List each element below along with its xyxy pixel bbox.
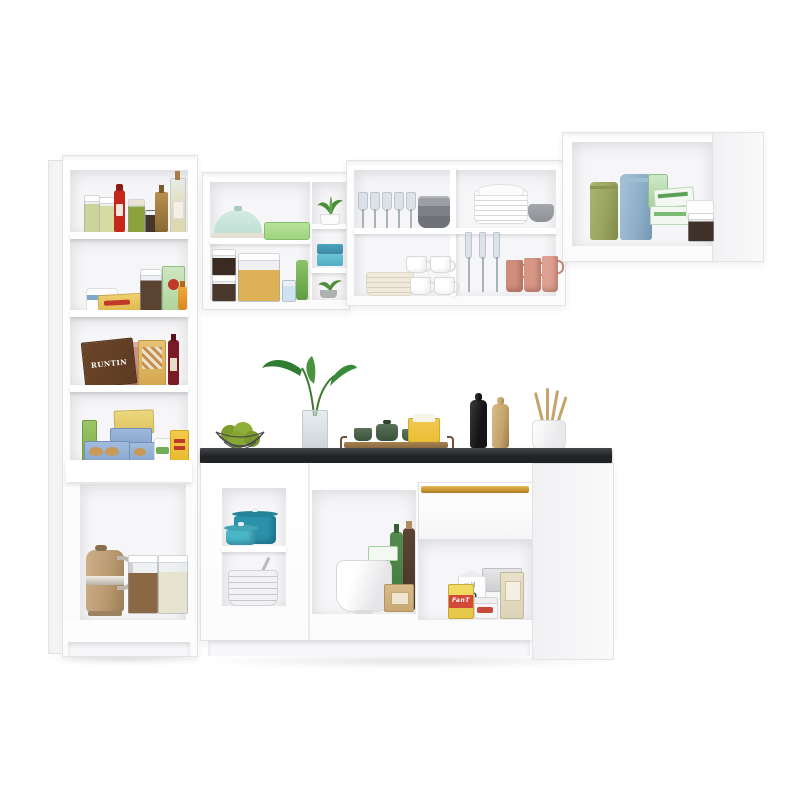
beige-box — [500, 572, 524, 619]
milk-carton-gable — [458, 570, 484, 577]
wine-glass — [406, 192, 416, 228]
wine-glass — [358, 192, 368, 228]
right-cabinet-side-panel — [712, 132, 764, 262]
succulent-plant — [315, 194, 345, 216]
glass-vase — [302, 410, 328, 450]
white-cup — [406, 256, 427, 273]
white-cup — [434, 277, 455, 295]
olive-jar — [128, 202, 145, 234]
base-plinth — [208, 640, 530, 656]
drawer-gold-handle — [421, 486, 529, 493]
cereal-box — [138, 340, 166, 386]
base-corner-shelf — [222, 546, 286, 552]
cereal-canister — [238, 256, 280, 302]
kraft-paper-bag — [384, 584, 414, 612]
apple-basket — [212, 416, 268, 450]
green-teapot — [376, 424, 398, 441]
chocolate-box: RUNTIN — [81, 337, 138, 388]
bowl-stack — [228, 570, 278, 606]
berry-jar — [212, 278, 236, 302]
kitchen-set-product-photo: RUNTIN — [0, 0, 800, 800]
coffee-canister — [128, 558, 158, 614]
mid-cabinet-shelf — [354, 228, 556, 234]
electric-kettle — [86, 550, 124, 612]
wine-glass — [370, 192, 380, 228]
pantry-divider-thick — [66, 460, 192, 482]
gray-plant-pot — [320, 290, 337, 298]
ketchup-bottle — [114, 190, 125, 232]
green-teacup — [354, 428, 372, 441]
corner-cabinet-top-face — [203, 173, 347, 178]
cream-plate-stack — [366, 272, 414, 296]
small-jar — [282, 280, 296, 302]
juice-box-label: FanT — [452, 598, 470, 604]
pantry-shelf-board — [70, 310, 188, 317]
wine-glass — [382, 192, 392, 228]
jam-jar — [474, 600, 498, 619]
pantry-front-bottom — [63, 620, 195, 642]
pantry-top-face — [63, 156, 195, 161]
chocolate-box-label: RUNTIN — [91, 358, 128, 369]
pink-mug — [506, 260, 523, 292]
white-dish-top-bowl — [478, 184, 524, 196]
green-container — [264, 222, 310, 240]
base-side-panel — [532, 463, 614, 660]
olive-oil-bottle — [170, 178, 186, 234]
gray-bowl — [528, 204, 554, 222]
kettle-lid — [95, 545, 107, 551]
berry-jar — [212, 252, 236, 276]
gray-bowl-stack — [418, 196, 450, 228]
blue-container — [317, 254, 343, 266]
column-shelf — [312, 268, 348, 273]
base-corner-seam — [308, 463, 310, 640]
flour-canister — [158, 558, 188, 614]
white-plant-pot — [320, 214, 340, 225]
champagne-flute — [464, 232, 473, 292]
mid-cabinet-top-face — [347, 161, 563, 166]
countertop — [200, 448, 612, 463]
black-pepper-mill — [470, 400, 487, 448]
blue-container — [317, 244, 343, 254]
wooden-pepper-mill — [492, 404, 509, 448]
pink-mug — [524, 258, 541, 292]
turquoise-saucepan — [226, 530, 256, 545]
juice-box: FanT — [448, 584, 474, 619]
dry-goods-canister — [140, 272, 162, 312]
white-cup — [410, 277, 431, 295]
pantry-plinth — [68, 642, 190, 656]
champagne-flute — [478, 232, 487, 292]
amber-oil-bottle — [155, 192, 168, 232]
pantry-shelf-board — [70, 385, 188, 392]
yellow-snack-box — [170, 430, 189, 462]
biscuit-box — [84, 441, 130, 462]
preserves-jar — [688, 216, 714, 242]
small-green-box — [368, 546, 398, 561]
white-cup — [430, 256, 451, 273]
champagne-flute — [492, 232, 501, 292]
wine-glass — [394, 192, 404, 228]
pantry-shelf-board — [70, 232, 188, 239]
pickle-jar — [84, 198, 100, 234]
green-canister — [590, 182, 618, 240]
pink-mug — [542, 256, 558, 292]
honey-bottle — [178, 286, 187, 310]
cake-dome-base — [211, 233, 265, 238]
kettle-base — [88, 611, 122, 616]
green-can — [296, 260, 308, 300]
red-vinegar-bottle — [168, 340, 179, 385]
leafy-plant — [258, 354, 358, 418]
pickle-jar — [99, 200, 115, 234]
